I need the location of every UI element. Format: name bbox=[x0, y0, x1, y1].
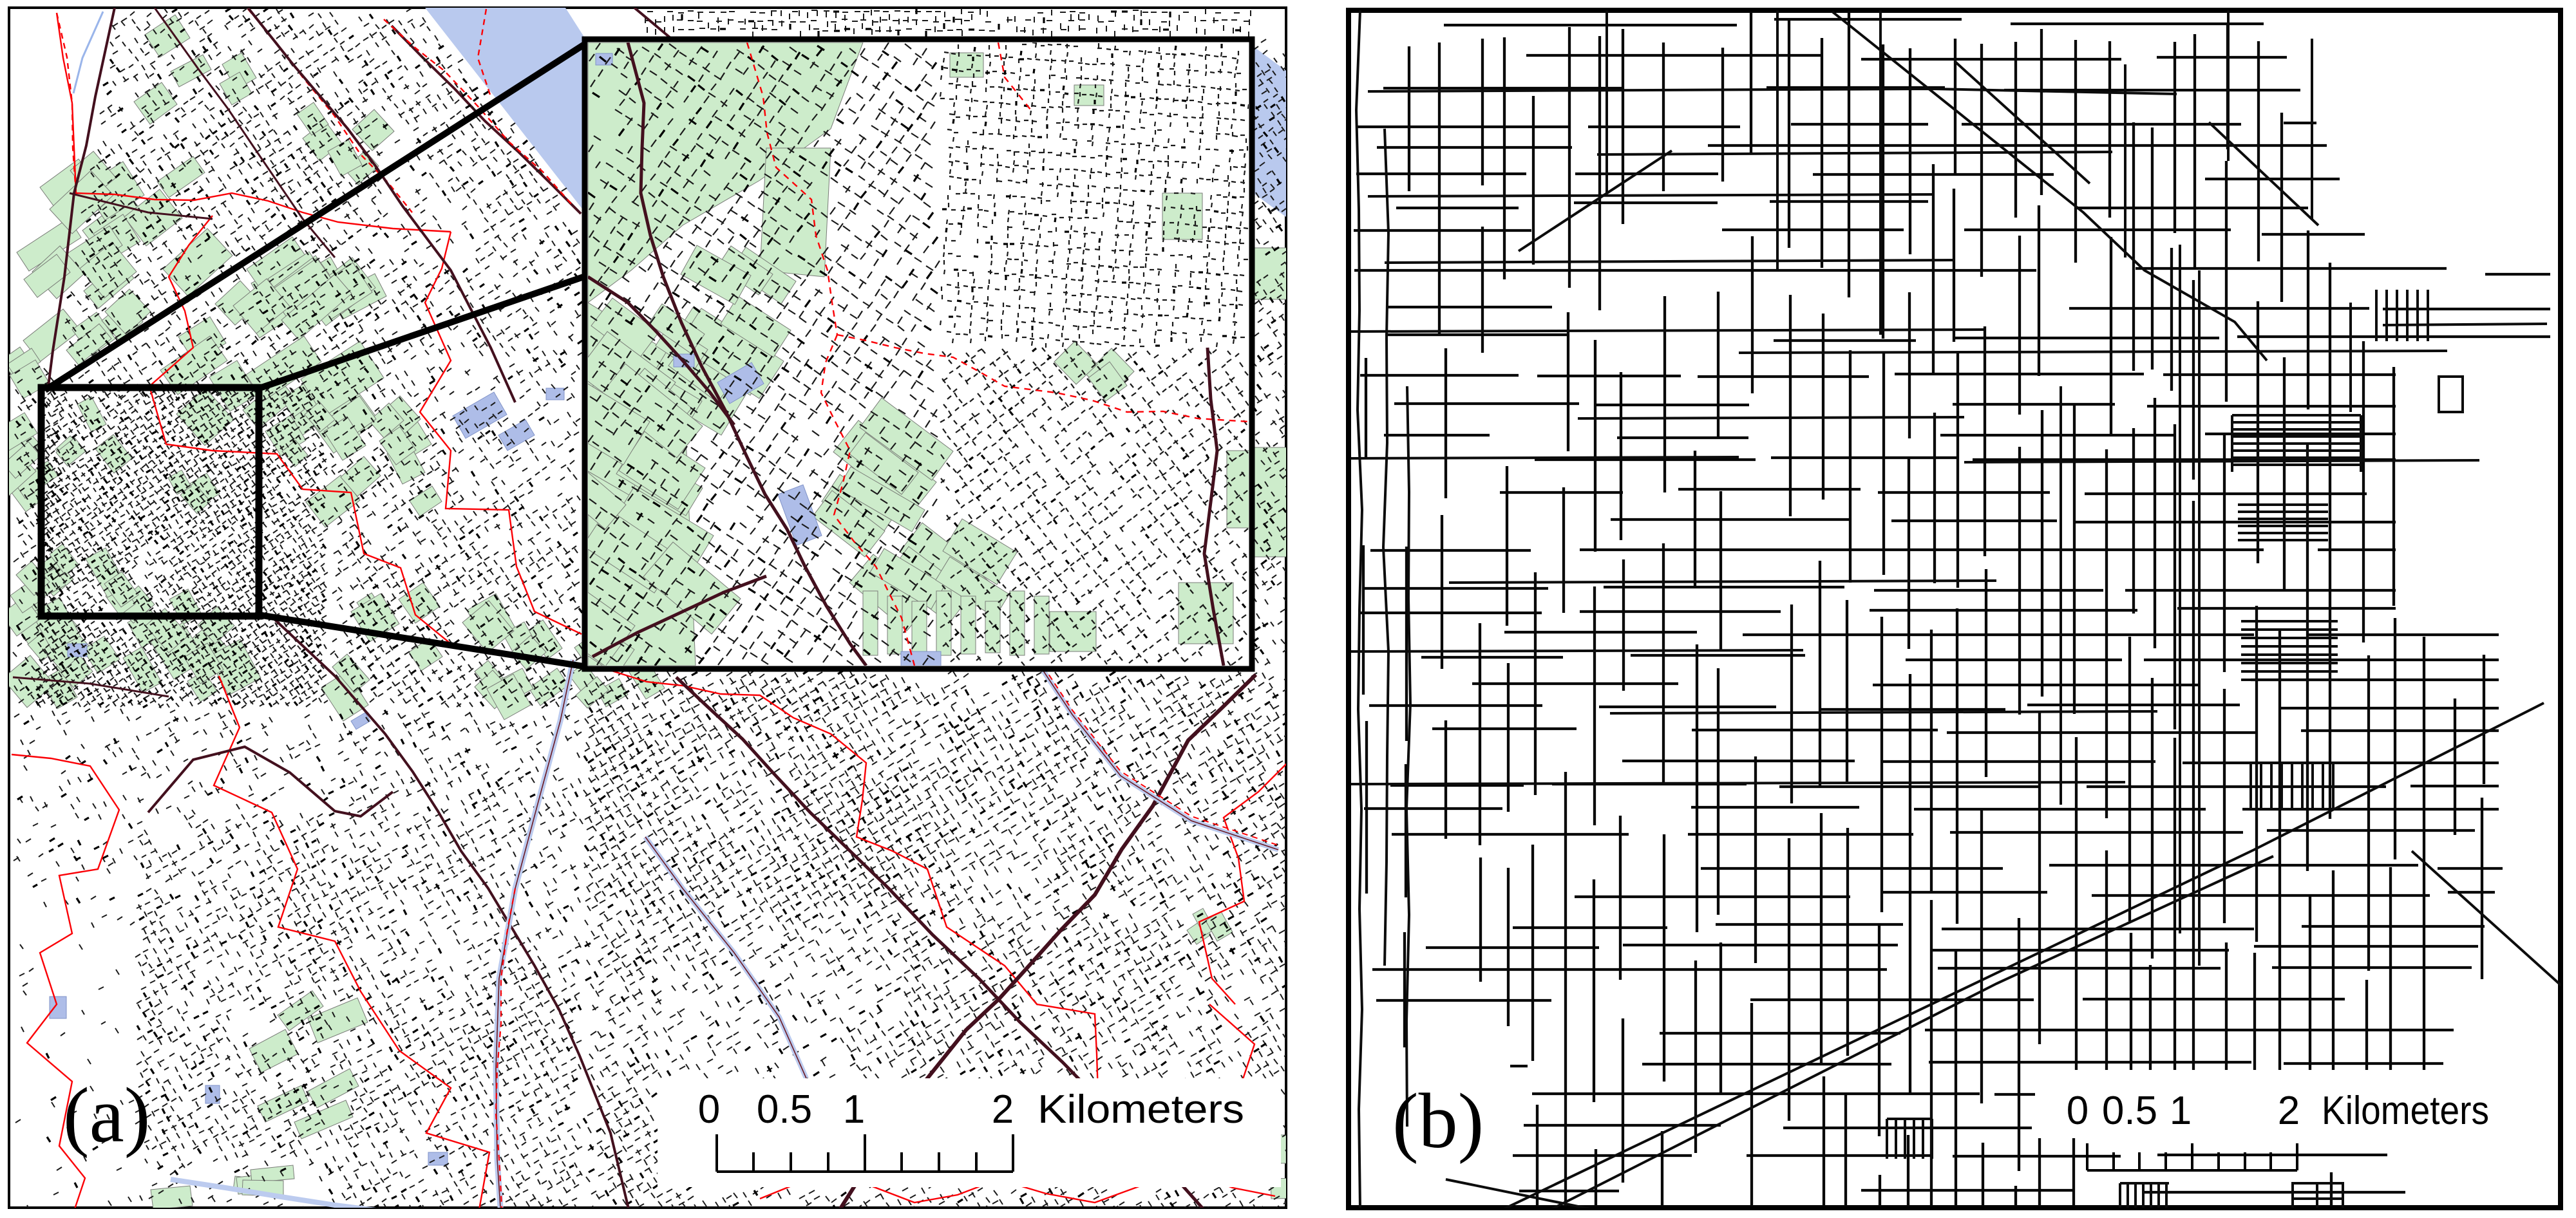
svg-text:Kilometers: Kilometers bbox=[2322, 1089, 2489, 1133]
svg-text:1: 1 bbox=[2170, 1089, 2192, 1133]
svg-text:1: 1 bbox=[843, 1087, 865, 1132]
svg-text:0.5: 0.5 bbox=[757, 1087, 812, 1132]
svg-text:0.5: 0.5 bbox=[2102, 1089, 2157, 1133]
svg-text:0: 0 bbox=[2067, 1089, 2088, 1133]
svg-text:2: 2 bbox=[992, 1087, 1014, 1132]
svg-text:2: 2 bbox=[2278, 1089, 2300, 1133]
svg-text:(a): (a) bbox=[63, 1072, 150, 1159]
svg-text:(b): (b) bbox=[1392, 1078, 1484, 1165]
svg-text:Kilometers: Kilometers bbox=[1037, 1087, 1244, 1132]
svg-text:0: 0 bbox=[698, 1087, 720, 1132]
